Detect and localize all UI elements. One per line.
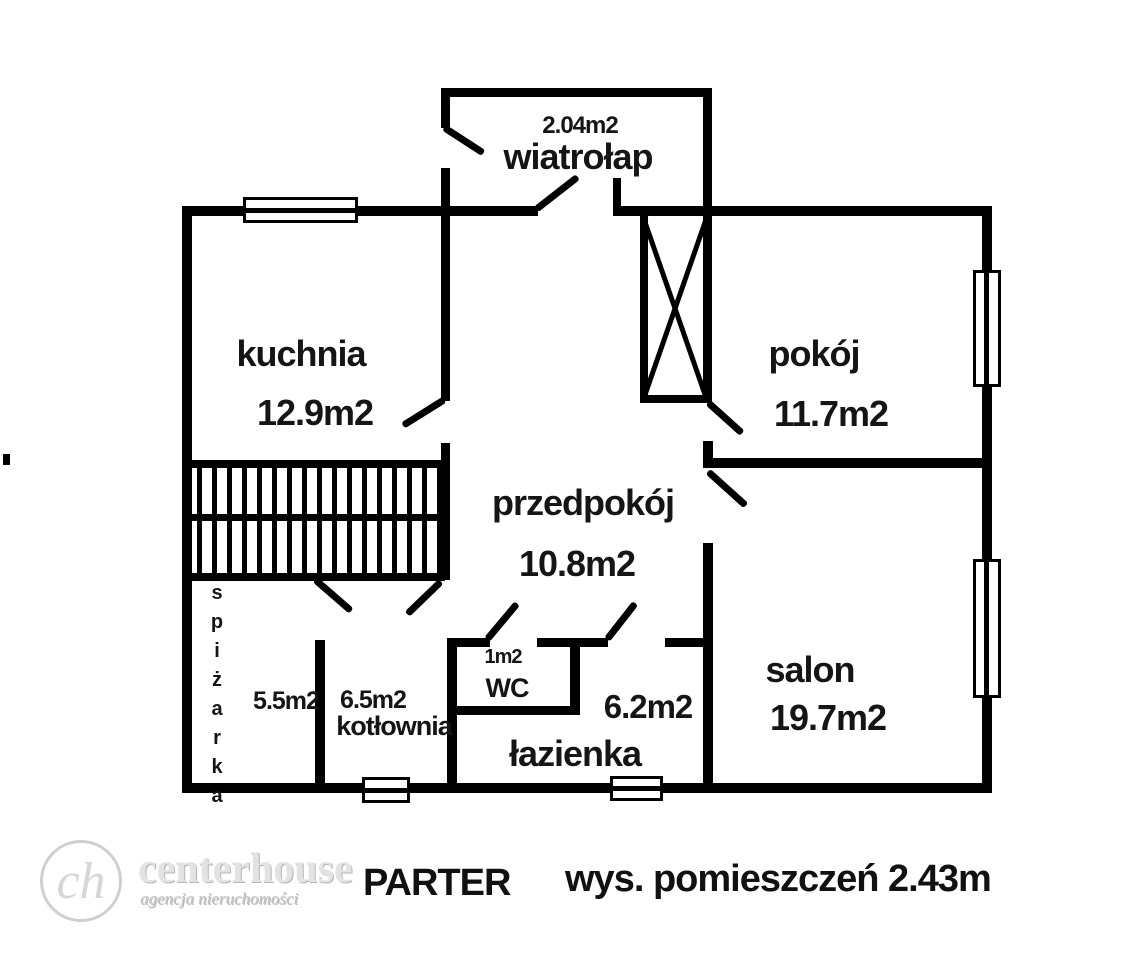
room-area-kuchnia: 12.9m2 <box>257 392 373 434</box>
wall-wc-right <box>570 638 580 715</box>
room-name-wc: WC <box>486 673 529 704</box>
floorplan-canvas: 2.04m2 wiatrołap kuchnia 12.9m2 pokój 11… <box>0 0 1143 960</box>
door-salon-leaf <box>706 469 749 508</box>
print-mark-dot <box>3 454 10 465</box>
stairs-treads <box>197 468 441 573</box>
wall-wiatrolap-right <box>703 88 712 208</box>
wall-wc-bottom <box>447 706 580 715</box>
wall-pokoj-bottom <box>703 458 992 468</box>
room-area-przedpokoj: 10.8m2 <box>519 543 635 585</box>
wall-outer-bottom <box>182 783 992 793</box>
door-entrance-leaf <box>442 125 485 156</box>
wall-kuchnia-right <box>441 168 450 401</box>
room-name-pokoj: pokój <box>769 333 860 375</box>
room-name-lazienka: łazienka <box>509 733 641 775</box>
room-name-spizarka: spiżarka <box>205 582 228 814</box>
agency-logo-brand: centerhouse <box>138 845 353 893</box>
room-area-lazienka: 6.2m2 <box>604 688 693 726</box>
door-kuchnia-leaf <box>401 397 446 429</box>
door-wiatrolap-hall-leaf <box>534 174 580 212</box>
room-area-pokoj: 11.7m2 <box>774 393 888 435</box>
wall-wiatrolap-top <box>441 88 712 97</box>
room-area-wc: 1m2 <box>484 646 521 669</box>
stairs-top-edge <box>185 460 450 468</box>
wall-pokoj-door-jamb <box>703 441 713 468</box>
ceiling-height-note: wys. pomieszczeń 2.43m <box>565 858 991 901</box>
room-name-wiatrolap: wiatrołap <box>503 136 652 178</box>
wall-shaft-right <box>703 208 712 403</box>
wall-hall-door-jamb <box>613 178 621 208</box>
stairs-right-wall <box>441 443 450 580</box>
door-lazienka-leaf <box>604 601 638 642</box>
window-kuchnia-mullion <box>246 208 355 213</box>
wall-outer-top-left <box>182 206 538 216</box>
wall-shaft-left <box>640 216 648 403</box>
wall-salon-left <box>703 543 713 785</box>
door-pokoj-leaf <box>706 400 745 436</box>
window-lazienka-mullion <box>613 786 660 791</box>
wall-wiatrolap-left-upper <box>441 88 450 128</box>
wall-lazienka-top-right <box>665 638 708 647</box>
room-name-salon: salon <box>765 649 854 691</box>
agency-logo-tagline: agencja nieruchomości <box>140 889 298 909</box>
window-pokoj-mullion <box>984 273 989 384</box>
floor-label: PARTER <box>363 862 510 905</box>
wall-outer-left <box>182 206 192 793</box>
window-salon-mullion <box>984 562 989 695</box>
door-spizarka-leaf <box>313 577 354 614</box>
agency-logo-monogram: ch <box>40 840 122 922</box>
door-kotlownia-leaf <box>405 579 444 617</box>
wall-shaft-bottom <box>640 395 712 403</box>
room-name-kuchnia: kuchnia <box>236 333 365 375</box>
agency-logo-monogram-text: ch <box>56 852 105 911</box>
door-wc-leaf <box>484 601 520 642</box>
wall-outer-top-right <box>613 206 992 216</box>
window-kotlownia-mullion <box>365 788 407 793</box>
room-name-przedpokoj: przedpokój <box>492 482 674 524</box>
room-area-salon: 19.7m2 <box>770 697 886 739</box>
room-area-spizarka: 5.5m2 <box>253 687 319 716</box>
room-name-kotlownia: kotłownia <box>336 711 452 742</box>
